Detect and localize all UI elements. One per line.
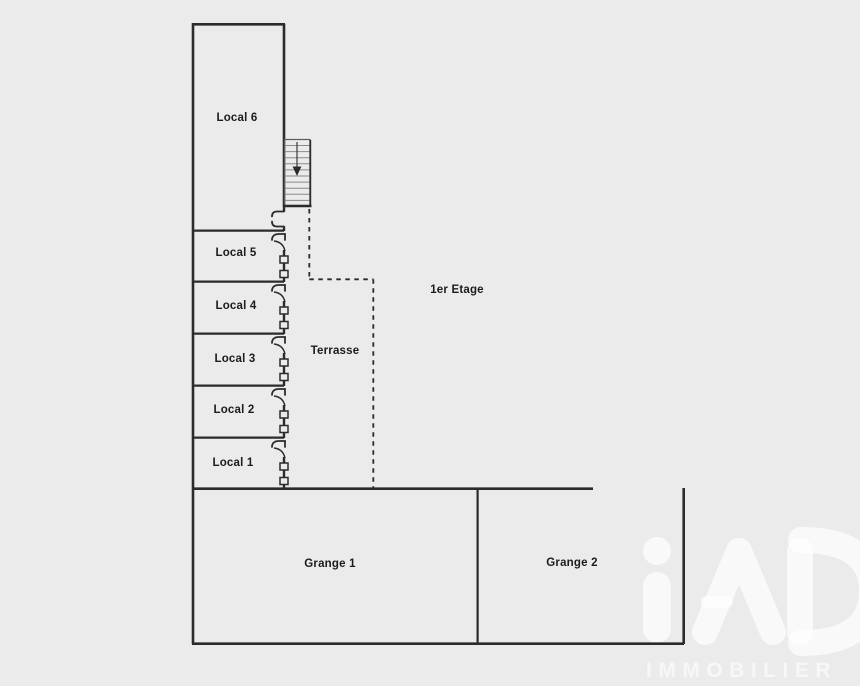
window-symbol xyxy=(280,271,288,278)
room-label-local-3: Local 3 xyxy=(214,353,255,365)
room-label-local-1: Local 1 xyxy=(212,457,253,469)
door-jamb xyxy=(272,441,285,447)
room-label-grange-1: Grange 1 xyxy=(304,558,356,570)
window-symbol xyxy=(280,426,288,433)
door-swing-arc xyxy=(274,448,285,458)
door-jamb xyxy=(272,337,285,343)
window-symbol xyxy=(280,463,288,470)
door-swing-arc xyxy=(274,241,285,251)
door-swing-arc xyxy=(274,344,285,354)
floor-plan: Local 6 Local 5 Local 4 Local 3 Local 2 … xyxy=(0,0,860,686)
room-labels: Local 6 Local 5 Local 4 Local 3 Local 2 … xyxy=(212,112,597,570)
window-symbol xyxy=(280,374,288,381)
window-symbol xyxy=(280,322,288,329)
door-jamb-bottom xyxy=(272,222,284,227)
floor-label-1er-etage: 1er Etage xyxy=(430,284,484,296)
room-label-local-4: Local 4 xyxy=(215,300,256,312)
door-window-symbol-local-2 xyxy=(272,389,288,433)
door-window-symbol-local-5 xyxy=(272,234,288,278)
door-window-symbol-local-4 xyxy=(272,285,288,329)
window-symbol xyxy=(280,411,288,418)
room-label-local-2: Local 2 xyxy=(213,404,254,416)
door-swing-arc xyxy=(274,292,285,302)
door-symbol-stair-landing xyxy=(272,212,284,227)
door-window-symbol-local-3 xyxy=(272,337,288,381)
door-jamb xyxy=(272,389,285,395)
window-symbol xyxy=(280,359,288,366)
window-symbol xyxy=(280,307,288,314)
door-window-symbol-local-1 xyxy=(272,441,288,485)
door-jamb-top xyxy=(272,212,284,217)
door-jamb xyxy=(272,285,285,291)
door-swing-arc xyxy=(274,396,285,406)
window-symbol xyxy=(280,478,288,485)
window-symbol xyxy=(280,256,288,263)
walls xyxy=(192,23,684,644)
staircase xyxy=(283,140,312,207)
room-label-local-5: Local 5 xyxy=(215,247,256,259)
door-jamb xyxy=(272,234,285,240)
room-label-local-6: Local 6 xyxy=(216,112,257,124)
room-label-grange-2: Grange 2 xyxy=(546,557,597,569)
floor-plan-canvas: IMMOBILIER xyxy=(0,0,860,686)
stair-down-arrow-icon xyxy=(293,167,302,177)
room-label-terrasse: Terrasse xyxy=(311,345,360,357)
